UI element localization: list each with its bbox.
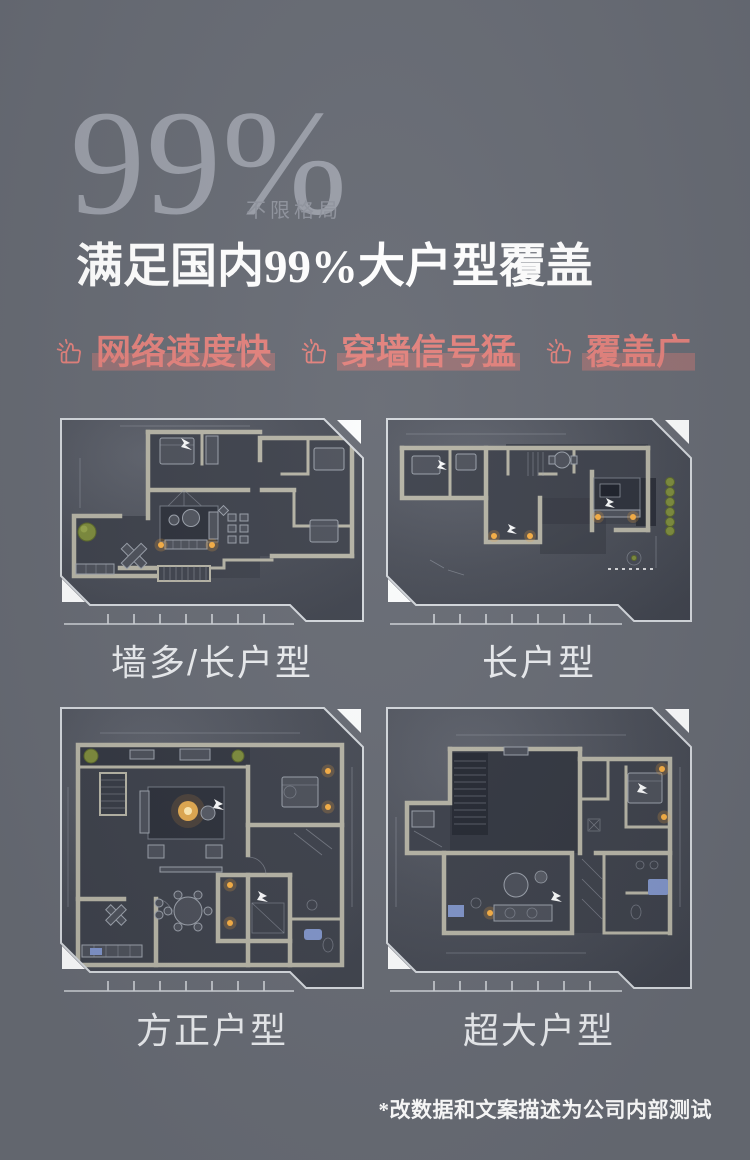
thumbs-up-sparkle-icon — [301, 338, 331, 370]
ceiling-light-dot — [322, 765, 335, 778]
floorplan-label-many-walls-long: 墙多/长户型 — [60, 634, 364, 686]
ceiling-light-dot — [322, 801, 335, 814]
ceiling-light-dot — [488, 530, 500, 542]
feature-item-speed: 网络速度快 — [56, 331, 275, 375]
bush-icon — [84, 749, 98, 763]
ceiling-light-dot — [206, 539, 219, 552]
thumbs-up-sparkle-icon — [546, 338, 576, 370]
thumbs-up-sparkle-icon — [56, 338, 86, 370]
dining-table — [504, 873, 528, 897]
floorplan-panel-extra-large — [386, 707, 692, 999]
floorplan-image-square — [68, 733, 352, 967]
ceiling-light-dot — [592, 511, 604, 523]
ceiling-light-dot — [627, 511, 639, 523]
page-title: 满足国内99%大户型覆盖 — [76, 227, 593, 296]
ceiling-light-dot — [224, 879, 237, 892]
percent-caption: 不限格局 — [246, 194, 342, 223]
bush-icon — [232, 750, 244, 762]
dining-table — [174, 897, 202, 925]
disclaimer-footnote: *改数据和文案描述为公司内部测试 — [379, 1094, 713, 1124]
floorplan-label-square: 方正户型 — [60, 1002, 364, 1054]
ruler-ticks — [64, 981, 294, 991]
ruler-ticks — [390, 981, 622, 991]
tree-icon — [78, 523, 96, 541]
ruler-ticks — [64, 614, 294, 624]
floorplan-panel-square — [60, 707, 364, 999]
ceiling-light-dot — [658, 811, 671, 824]
floorplan-panel-many-walls-long — [60, 418, 364, 630]
ceiling-light-dot — [656, 763, 669, 776]
promo-poster: 99% 不限格局 满足国内99%大户型覆盖 网络速度快 穿墙信号猛 — [0, 0, 750, 1160]
floorplan-panel-long — [386, 418, 692, 630]
ceiling-light-dot — [155, 539, 168, 552]
ruler-ticks — [390, 614, 622, 624]
ceiling-light-dot — [224, 917, 237, 930]
floorplan-label-long: 长户型 — [386, 634, 692, 686]
feature-badges: 网络速度快 穿墙信号猛 覆盖广 — [56, 331, 695, 375]
feature-item-coverage: 覆盖广 — [546, 331, 695, 375]
feature-label: 覆盖广 — [582, 331, 695, 375]
ceiling-light-dot — [524, 530, 536, 542]
feature-label: 穿墙信号猛 — [337, 331, 520, 375]
feature-label: 网络速度快 — [92, 331, 275, 375]
feature-item-signal: 穿墙信号猛 — [301, 331, 520, 375]
floorplan-label-extra-large: 超大户型 — [386, 1002, 692, 1054]
